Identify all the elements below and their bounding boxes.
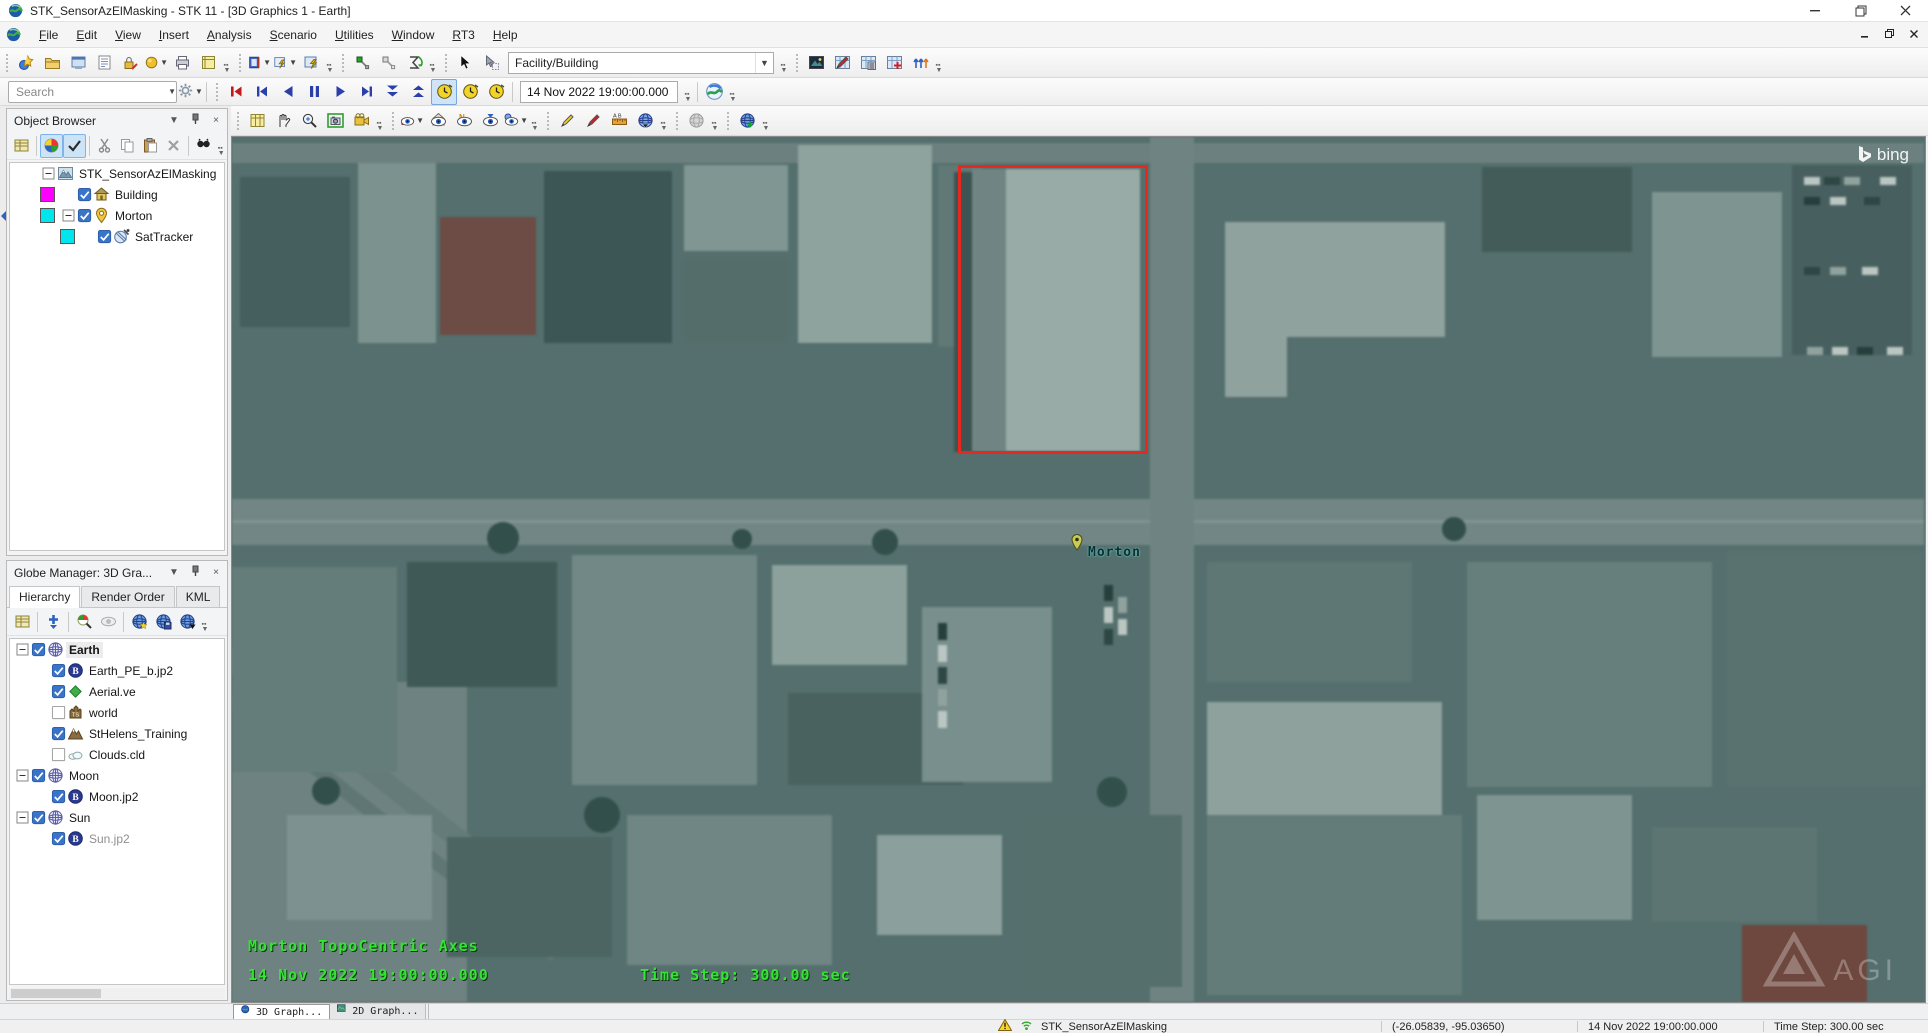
tree-row-sattracker[interactable]: SatTracker bbox=[10, 226, 224, 247]
svg-text:A B: A B bbox=[613, 114, 622, 120]
separator bbox=[188, 136, 189, 156]
link-node-button[interactable] bbox=[349, 50, 375, 76]
globe-picker-button[interactable] bbox=[632, 108, 658, 134]
swatch-column bbox=[34, 208, 60, 223]
menu-utilities[interactable]: Utilities bbox=[326, 24, 383, 46]
checkbox[interactable] bbox=[51, 684, 67, 700]
stk-globe-icon bbox=[6, 27, 22, 43]
view-north-button[interactable]: N bbox=[451, 108, 477, 134]
svg-text:B: B bbox=[72, 835, 79, 845]
paste-button[interactable] bbox=[139, 134, 162, 158]
menu-insert[interactable]: Insert bbox=[150, 24, 198, 46]
mdi-minimize-button[interactable] bbox=[1861, 29, 1869, 41]
timestep-overlay-label: Time Step: 300.00 sec bbox=[640, 966, 851, 984]
gear-icon bbox=[177, 82, 194, 102]
animation-decrease-step-button[interactable] bbox=[379, 79, 405, 105]
animation-reset-button[interactable] bbox=[223, 79, 249, 105]
search-options-button[interactable]: ▼ bbox=[177, 79, 203, 105]
panel-dropdown-icon[interactable]: ▼ bbox=[167, 567, 181, 578]
world-icon: TS bbox=[67, 704, 86, 721]
globe-manager-title: Globe Manager: 3D Gra... bbox=[14, 566, 152, 580]
globe-manager-tree: EarthBEarth_PE_b.jp2Aerial.veTSworldStHe… bbox=[9, 638, 225, 985]
draw-marker-button[interactable] bbox=[554, 108, 580, 134]
toolbar-grip[interactable] bbox=[214, 82, 220, 102]
tree-row-morton[interactable]: Morton bbox=[10, 205, 224, 226]
globe-icon bbox=[47, 809, 66, 826]
tree-row-earth[interactable]: Earth bbox=[10, 639, 224, 660]
report-style-button[interactable]: ▼ bbox=[246, 50, 272, 76]
mdi-window-controls bbox=[1861, 29, 1928, 41]
toolbar-overflow[interactable]: ▪▪▼ bbox=[658, 109, 670, 133]
graphics-window-frame: Morton Morton TopoCentric Axes 14 Nov 20… bbox=[231, 136, 1926, 1003]
animation-pause-button[interactable] bbox=[301, 79, 327, 105]
place-icon bbox=[93, 207, 112, 224]
pick-cursor-button[interactable] bbox=[478, 50, 504, 76]
cloud-icon bbox=[67, 746, 86, 763]
tree-label: Sun.jp2 bbox=[86, 831, 133, 847]
mdi-close-button[interactable] bbox=[1910, 29, 1918, 41]
toolbar-grip[interactable] bbox=[340, 53, 346, 73]
tree-label: Earth_PE_b.jp2 bbox=[86, 663, 176, 679]
view-planet-button[interactable]: ▼ bbox=[503, 108, 529, 134]
open-scenario-button[interactable] bbox=[39, 50, 65, 76]
checkbox[interactable] bbox=[77, 187, 93, 203]
restore-button[interactable] bbox=[1838, 0, 1883, 21]
pan-tool-button[interactable] bbox=[270, 108, 296, 134]
toolbar-grip[interactable] bbox=[794, 53, 800, 73]
checkbox[interactable] bbox=[31, 810, 47, 826]
tree-label: world bbox=[86, 705, 121, 721]
globe-disabled-button[interactable] bbox=[683, 108, 709, 134]
separator bbox=[37, 612, 38, 632]
toolbar-overflow[interactable]: ▪▪▼ bbox=[221, 51, 233, 75]
globe-add-button[interactable] bbox=[127, 610, 151, 634]
tree-label: Sun bbox=[66, 810, 93, 826]
globe-down-button[interactable] bbox=[175, 610, 199, 634]
globe-icon bbox=[47, 767, 66, 784]
search-imagery-button[interactable] bbox=[72, 610, 96, 634]
tab-2d-graph-[interactable]: 2D Graph... bbox=[330, 1004, 426, 1019]
table-edit-button[interactable] bbox=[829, 50, 855, 76]
morton-marker-icon bbox=[1070, 533, 1084, 554]
save-viewer-form-button[interactable] bbox=[65, 50, 91, 76]
tree-label: Building bbox=[112, 187, 161, 203]
table-add-button[interactable] bbox=[881, 50, 907, 76]
tree-row-building[interactable]: Building bbox=[10, 184, 224, 205]
horizontal-scrollbar[interactable] bbox=[9, 988, 225, 999]
window-title: STK_SensorAzElMasking - STK 11 - [3D Gra… bbox=[30, 4, 351, 18]
globe-icon bbox=[47, 641, 66, 658]
checkbox[interactable] bbox=[97, 229, 113, 245]
expander-icon[interactable] bbox=[14, 641, 31, 658]
tree-label: StHelens_Training bbox=[86, 726, 190, 742]
measure-tool-button[interactable]: A B bbox=[606, 108, 632, 134]
expander-icon[interactable] bbox=[14, 767, 31, 784]
separator bbox=[89, 136, 90, 156]
toolbar-grip[interactable] bbox=[725, 111, 731, 131]
status-bar: STK_SensorAzElMasking (-26.05839, -95.03… bbox=[0, 1019, 1928, 1033]
search-input[interactable]: Search ▼ bbox=[8, 81, 177, 103]
expander-icon[interactable] bbox=[14, 809, 31, 826]
close-button[interactable] bbox=[1883, 0, 1928, 21]
clock-realtime-button[interactable] bbox=[431, 79, 457, 105]
tree-label: Aerial.ve bbox=[86, 684, 139, 700]
animation-step-reverse-button[interactable] bbox=[249, 79, 275, 105]
timeline-tool-button[interactable] bbox=[907, 50, 933, 76]
toolbar-overflow[interactable]: ▪▪▼ bbox=[529, 109, 541, 133]
status-scenario: STK_SensorAzElMasking bbox=[1037, 1021, 1375, 1033]
menu-rt3[interactable]: RT3 bbox=[443, 24, 483, 46]
toolbar-overflow[interactable]: ▪▪▼ bbox=[727, 80, 739, 104]
draw-pen-button[interactable] bbox=[580, 108, 606, 134]
svg-text:B: B bbox=[72, 667, 79, 677]
close-icon[interactable]: × bbox=[209, 567, 223, 578]
object-type-dropdown[interactable]: Facility/Building▼ bbox=[508, 52, 774, 74]
warning-icon bbox=[994, 1019, 1016, 1033]
menu-analysis[interactable]: Analysis bbox=[198, 24, 261, 46]
report-manager-button[interactable] bbox=[91, 50, 117, 76]
view-properties-button[interactable] bbox=[244, 108, 270, 134]
color-swatch[interactable] bbox=[40, 208, 55, 223]
mdi-restore-button[interactable] bbox=[1885, 29, 1894, 41]
bing-logo-text: bing bbox=[1877, 145, 1909, 165]
cut-button[interactable] bbox=[93, 134, 116, 158]
tab-3d-icon bbox=[241, 1005, 253, 1020]
tree-label: Moon bbox=[66, 768, 102, 784]
pin-icon[interactable] bbox=[188, 113, 202, 128]
building-icon bbox=[93, 186, 112, 203]
toolbar-grip[interactable] bbox=[235, 111, 241, 131]
globe-manager-toolbar: ▪▪▼ bbox=[7, 608, 227, 636]
bing-icon: B bbox=[67, 788, 86, 805]
tree-row-aerial-ve[interactable]: Aerial.ve bbox=[10, 681, 224, 702]
object-browser-tree: STK_SensorAzElMaskingBuildingMortonSatTr… bbox=[9, 162, 225, 551]
clock-step-button[interactable] bbox=[483, 79, 509, 105]
agi-logo: AGI bbox=[1763, 932, 1897, 988]
mountain-icon bbox=[67, 725, 86, 742]
globe-import-button[interactable] bbox=[734, 108, 760, 134]
view-nadir-button[interactable] bbox=[477, 108, 503, 134]
mdi-tab-bar: 3D Graph...2D Graph... bbox=[0, 1003, 1928, 1019]
separator bbox=[68, 612, 69, 632]
report-grid-button[interactable] bbox=[10, 134, 33, 158]
checkbox[interactable] bbox=[31, 642, 47, 658]
print-button[interactable] bbox=[169, 50, 195, 76]
copy-button[interactable] bbox=[116, 134, 139, 158]
access-tool-button[interactable] bbox=[117, 50, 143, 76]
tree-label: Earth bbox=[66, 642, 103, 658]
tab-3d-graph-[interactable]: 3D Graph... bbox=[233, 1004, 330, 1019]
separator bbox=[36, 136, 37, 156]
delete-button[interactable] bbox=[162, 134, 185, 158]
tree-label: Moon.jp2 bbox=[86, 789, 141, 805]
home-view-button[interactable] bbox=[425, 108, 451, 134]
tree-row-sun[interactable]: Sun bbox=[10, 807, 224, 828]
chain-node-button[interactable] bbox=[375, 50, 401, 76]
animation-step-forward-button[interactable] bbox=[353, 79, 379, 105]
tree-row-sun-jp2[interactable]: BSun.jp2 bbox=[10, 828, 224, 849]
app-globe-icon bbox=[8, 3, 24, 19]
dock-arrow-icon[interactable] bbox=[0, 210, 7, 225]
object-browser-toolbar: ▪▪▼ bbox=[7, 132, 227, 160]
globe-sync-button[interactable] bbox=[701, 79, 727, 105]
find-button[interactable] bbox=[192, 134, 215, 158]
toolbar-overflow[interactable]: ▪▪▼ bbox=[933, 51, 945, 75]
stk-window: STK_SensorAzElMasking - STK 11 - [3D Gra… bbox=[0, 0, 1928, 1033]
hide-item-button[interactable] bbox=[96, 610, 120, 634]
globe-manager-header: Globe Manager: 3D Gra... ▼ × bbox=[7, 561, 227, 584]
tree-label: SatTracker bbox=[132, 229, 196, 245]
toolbar-grip[interactable] bbox=[443, 53, 449, 73]
minimize-button[interactable] bbox=[1793, 0, 1838, 21]
globe-options-button[interactable]: ▼ bbox=[143, 50, 169, 76]
status-timestep: Time Step: 300.00 sec bbox=[1770, 1021, 1928, 1033]
record-movie-button[interactable] bbox=[348, 108, 374, 134]
left-dock: Object Browser ▼ × ▪▪▼ STK_SensorAzElMas… bbox=[0, 106, 231, 1003]
new-scenario-button[interactable] bbox=[13, 50, 39, 76]
sensor-icon bbox=[113, 228, 132, 245]
tree-row-sthelens-training[interactable]: StHelens_Training bbox=[10, 723, 224, 744]
signal-icon bbox=[1016, 1019, 1037, 1033]
toolbar-overflow[interactable]: ▪▪▼ bbox=[215, 134, 227, 158]
globe-manager-tabs: HierarchyRender OrderKML bbox=[7, 584, 227, 608]
tree-row-earth-pe-b-jp2[interactable]: BEarth_PE_b.jp2 bbox=[10, 660, 224, 681]
zoom-tool-button[interactable] bbox=[296, 108, 322, 134]
highlight-rectangle bbox=[958, 165, 1148, 454]
table-view-button[interactable] bbox=[855, 50, 881, 76]
animation-toolbar: Search ▼ ▼ 14 Nov 2022 19:00:00.000 ▪▪▼ … bbox=[0, 78, 1928, 106]
main-toolbar: ▼▪▪▼▼▼▪▪▼▪▪▼Facility/Building▼▪▪▼▪▪▼ bbox=[0, 48, 1928, 78]
swatch-column bbox=[34, 187, 60, 202]
toolbar-grip[interactable] bbox=[390, 111, 396, 131]
object-browser-title: Object Browser bbox=[14, 114, 96, 128]
checkbox[interactable] bbox=[51, 789, 67, 805]
color-wheel-button[interactable] bbox=[40, 134, 63, 158]
toolbar-overflow[interactable]: ▪▪▼ bbox=[324, 51, 336, 75]
toolbar-overflow[interactable]: ▪▪▼ bbox=[709, 109, 721, 133]
tab-label: 2D Graph... bbox=[352, 1006, 418, 1017]
toolbar-overflow[interactable]: ▪▪▼ bbox=[427, 51, 439, 75]
view-from-button[interactable]: ▼ bbox=[399, 108, 425, 134]
checkbox[interactable] bbox=[51, 705, 67, 721]
bing-icon: B bbox=[67, 830, 86, 847]
add-item-button[interactable] bbox=[41, 610, 65, 634]
snap-frame-button[interactable] bbox=[322, 108, 348, 134]
toolbar-overflow[interactable]: ▪▪▼ bbox=[682, 80, 694, 104]
search-placeholder: Search bbox=[16, 85, 54, 99]
tree-row-world[interactable]: TSworld bbox=[10, 702, 224, 723]
checkbox[interactable] bbox=[77, 208, 93, 224]
toolbar-overflow[interactable]: ▪▪▼ bbox=[374, 109, 386, 133]
axes-overlay-label: Morton TopoCentric Axes bbox=[248, 937, 479, 955]
panel-dropdown-icon[interactable]: ▼ bbox=[167, 115, 181, 126]
tree-row-moon-jp2[interactable]: BMoon.jp2 bbox=[10, 786, 224, 807]
color-swatch[interactable] bbox=[40, 187, 55, 202]
chevron-down-icon[interactable]: ▼ bbox=[755, 53, 773, 73]
tab-label: 3D Graph... bbox=[256, 1007, 322, 1018]
checkbox[interactable] bbox=[51, 663, 67, 679]
agi-logo-text: AGI bbox=[1833, 954, 1897, 988]
select-cursor-button[interactable] bbox=[452, 50, 478, 76]
separator bbox=[123, 612, 124, 632]
tree-label: Clouds.cld bbox=[86, 747, 148, 763]
tab-kml[interactable]: KML bbox=[176, 586, 221, 607]
toolbar-grip[interactable] bbox=[237, 53, 243, 73]
scenario-icon bbox=[57, 165, 76, 182]
tree-label: STK_SensorAzElMasking bbox=[76, 166, 219, 182]
tab-hierarchy[interactable]: Hierarchy bbox=[9, 586, 80, 608]
toolbar-overflow[interactable]: ▪▪▼ bbox=[199, 610, 211, 634]
filter-check-button[interactable] bbox=[63, 134, 86, 158]
report-grid-button[interactable] bbox=[10, 610, 34, 634]
svg-text:TS: TS bbox=[72, 713, 79, 719]
tree-label: Morton bbox=[112, 208, 155, 224]
toolbar-grip[interactable] bbox=[674, 111, 680, 131]
animation-increase-step-button[interactable] bbox=[405, 79, 431, 105]
status-coordinates: (-26.05839, -95.03650) bbox=[1388, 1021, 1571, 1033]
dynamic-display-button[interactable] bbox=[401, 50, 427, 76]
animation-time-field[interactable]: 14 Nov 2022 19:00:00.000 bbox=[520, 81, 678, 103]
toolbar-grip[interactable] bbox=[4, 53, 10, 73]
object-browser-panel: Object Browser ▼ × ▪▪▼ STK_SensorAzElMas… bbox=[6, 108, 228, 556]
menu-view[interactable]: View bbox=[106, 24, 150, 46]
html-viewer-button[interactable] bbox=[195, 50, 221, 76]
pin-icon[interactable] bbox=[188, 565, 202, 580]
tree-row-clouds-cld[interactable]: Clouds.cld bbox=[10, 744, 224, 765]
animation-time-value: 14 Nov 2022 19:00:00.000 bbox=[527, 85, 668, 99]
color-swatch[interactable] bbox=[60, 229, 75, 244]
globe-save-button[interactable] bbox=[151, 610, 175, 634]
menu-edit[interactable]: Edit bbox=[67, 24, 106, 46]
expander-icon[interactable] bbox=[60, 207, 77, 224]
bing-icon: B bbox=[67, 662, 86, 679]
close-icon[interactable]: × bbox=[209, 115, 223, 126]
divider bbox=[428, 1004, 429, 1019]
time-overlay-label: 14 Nov 2022 19:00:00.000 bbox=[248, 966, 489, 984]
status-time: 14 Nov 2022 19:00:00.000 bbox=[1584, 1021, 1757, 1033]
object-browser-header: Object Browser ▼ × bbox=[7, 109, 227, 132]
checkbox[interactable] bbox=[51, 831, 67, 847]
clock-time-button[interactable] bbox=[457, 79, 483, 105]
checkbox[interactable] bbox=[51, 726, 67, 742]
tree-row-stk-sensorazelmasking[interactable]: STK_SensorAzElMasking bbox=[10, 163, 224, 184]
toolbar-grip[interactable] bbox=[545, 111, 551, 131]
image-snap-button[interactable] bbox=[803, 50, 829, 76]
window-titlebar: STK_SensorAzElMasking - STK 11 - [3D Gra… bbox=[0, 0, 1928, 22]
svg-text:B: B bbox=[72, 793, 79, 803]
tab-2d-icon bbox=[337, 1004, 349, 1019]
morton-marker-label: Morton bbox=[1088, 545, 1141, 560]
graph-style-button[interactable]: ▼ bbox=[272, 50, 298, 76]
view-toolbar: ▪▪▼▼N▼▪▪▼A B▪▪▼▪▪▼▪▪▼ bbox=[231, 106, 1928, 136]
menu-scenario[interactable]: Scenario bbox=[261, 24, 326, 46]
checkbox[interactable] bbox=[51, 747, 67, 763]
menu-help[interactable]: Help bbox=[484, 24, 527, 46]
animation-play-button[interactable] bbox=[327, 79, 353, 105]
tab-render-order[interactable]: Render Order bbox=[81, 586, 174, 607]
scrollbar-thumb[interactable] bbox=[11, 989, 101, 998]
swatch-column bbox=[54, 229, 80, 244]
toolbar-overflow[interactable]: ▪▪▼ bbox=[760, 109, 772, 133]
strip-chart-button[interactable] bbox=[298, 50, 324, 76]
menu-file[interactable]: File bbox=[30, 24, 67, 46]
checkbox[interactable] bbox=[31, 768, 47, 784]
globe-manager-panel: Globe Manager: 3D Gra... ▼ × HierarchyRe… bbox=[6, 560, 228, 1001]
map-viewport[interactable]: Morton Morton TopoCentric Axes 14 Nov 20… bbox=[232, 137, 1925, 1002]
animation-play-reverse-button[interactable] bbox=[275, 79, 301, 105]
menu-bar: FileEditViewInsertAnalysisScenarioUtilit… bbox=[0, 22, 1928, 48]
toolbar-overflow[interactable]: ▪▪▼ bbox=[778, 51, 790, 75]
menu-window[interactable]: Window bbox=[383, 24, 444, 46]
bing-logo: bing bbox=[1857, 145, 1909, 165]
diamond-icon bbox=[67, 683, 86, 700]
expander-icon[interactable] bbox=[40, 165, 57, 182]
tree-row-moon[interactable]: Moon bbox=[10, 765, 224, 786]
object-type-value: Facility/Building bbox=[515, 56, 598, 70]
